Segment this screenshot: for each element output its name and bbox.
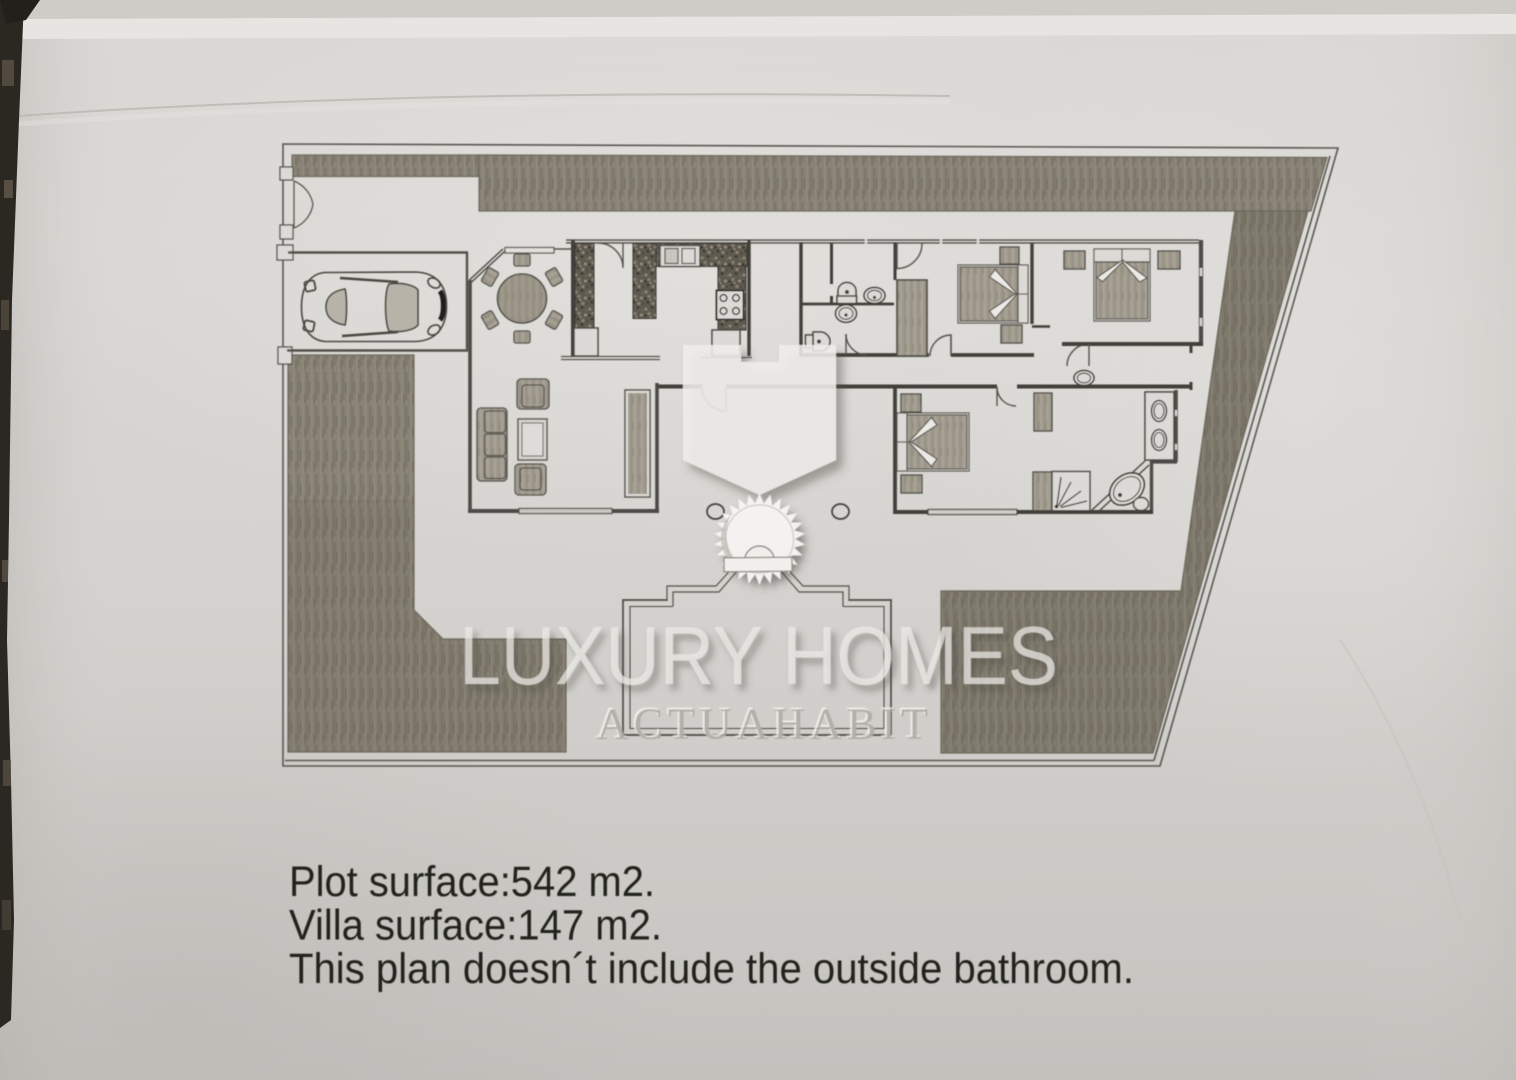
svg-text:Plot surface:542 m2.: Plot surface:542 m2. <box>289 858 655 906</box>
svg-text:This plan doesn´t include the: This plan doesn´t include the outside ba… <box>289 945 1134 993</box>
svg-text:Villa surface:147 m2.: Villa surface:147 m2. <box>289 902 662 950</box>
svg-text:LUXURY HOMES: LUXURY HOMES <box>459 609 1058 702</box>
